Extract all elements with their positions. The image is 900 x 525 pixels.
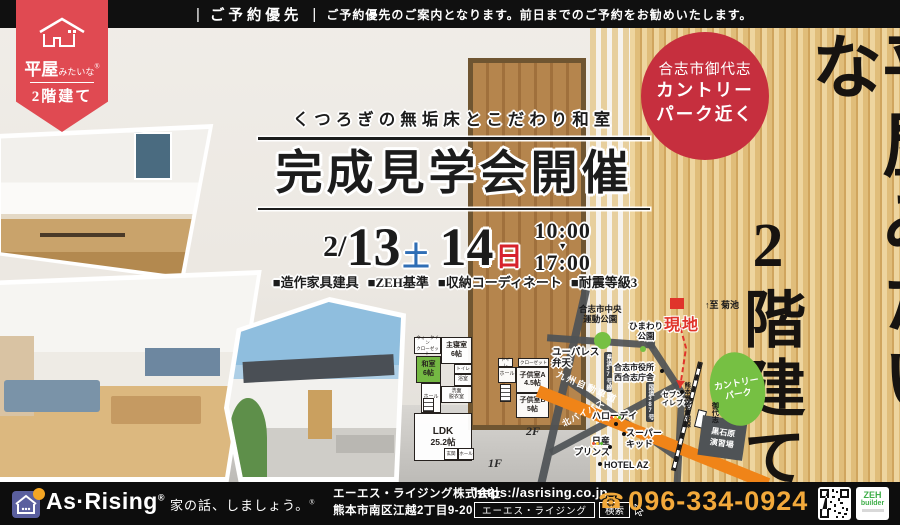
event-day2: 14 [440, 220, 494, 274]
zeh-builder-badge: ZEH builder [856, 487, 889, 520]
sports-park-label: 合志市中央 運動公園 [579, 304, 622, 324]
map-label: 西合志庁舎 [614, 373, 654, 383]
registered-mark: ® [309, 499, 315, 507]
entry-door [308, 390, 332, 439]
divider: | [196, 6, 200, 23]
room-label: 主寝室 [442, 342, 471, 350]
station-label: 御代志 [710, 402, 718, 423]
badge-park-line1: カントリー [641, 79, 769, 103]
headline-rule-bottom [258, 208, 650, 211]
room-master: 主寝室 6帖 [441, 337, 472, 364]
room-label: クローゼット [519, 360, 548, 365]
room-toilet-1f: トイレ [454, 364, 472, 374]
room-label: トイレ [455, 366, 471, 371]
room-washroom: 洗面 脱衣室 [441, 386, 472, 403]
map-label: 公園 [629, 331, 663, 341]
stairs-2f [500, 384, 511, 402]
room-hall-entry: ホール [458, 448, 474, 460]
map-label: 合志市中央 [579, 304, 622, 314]
site-label: 現地 [664, 311, 700, 335]
map-label: スーパー [626, 428, 662, 439]
himawari-label: ひまわり 公園 [629, 321, 663, 341]
divider: | [312, 6, 316, 23]
traffic-signal-icon [610, 416, 621, 419]
map-label: 弁天 [552, 358, 599, 369]
floor-label-1f: 1F [488, 456, 502, 471]
brand-name: As·Rising [46, 488, 158, 514]
phone-number: 096-334-0924 [628, 486, 808, 517]
badge-park-line2: パーク近く [641, 103, 769, 127]
event-month: 2/ [323, 230, 346, 264]
map-label: 合志市役所 [614, 363, 654, 373]
phone-icon: ☎ [598, 489, 624, 514]
reservation-text-row: | ご予約優先 | ご予約優先のご案内となります。前日までのご予約をお勧めいたし… [196, 4, 753, 25]
photo-kitchen [0, 124, 220, 292]
feature-item: ■ZEH基準 [368, 272, 429, 291]
reservation-top-bar: | ご予約優先 | ご予約優先のご案内となります。前日までのご予約をお勧めいたし… [0, 0, 900, 28]
tagline-text: 家の話、しましょう。 [170, 498, 309, 513]
room-closet-2f: クローゼット [518, 358, 549, 367]
photo-house-exterior [224, 297, 406, 482]
ribbon-brand-line1: 平屋みたいな® [16, 55, 108, 80]
zeh-builder-label: builder [856, 500, 889, 507]
room-label: 脱衣室 [442, 395, 471, 401]
map-label: ひまわり [629, 321, 663, 331]
brand-tagline: 家の話、しましょう。® [170, 495, 316, 514]
traffic-signal-icon [592, 442, 603, 445]
time-start: 10:00 [535, 220, 591, 242]
room-size: 6帖 [417, 370, 440, 378]
time-end: 17:00 [535, 252, 591, 274]
headline-block: くつろぎの無垢床とこだわり和室 完成見学会開催 [258, 106, 650, 217]
room-entrance: 玄関 [444, 448, 458, 460]
map-label: プリンス [574, 447, 610, 458]
map-label: ユーパレス [552, 347, 599, 358]
headline-rule-top [258, 137, 650, 140]
reservation-priority-label: ご予約優先 [210, 4, 303, 25]
feature-list: ■造作家具建具 ■ZEH基準 ■収納コーディネート ■耐震等級3 [240, 272, 670, 291]
cabinet-handle [40, 233, 126, 237]
entry-steps [336, 435, 394, 453]
room-label: クローゼット [415, 346, 440, 356]
registered-mark: ® [158, 492, 165, 502]
event-day2-weekday: 日 [496, 235, 523, 274]
room-label: 浴室 [455, 377, 471, 383]
room-hall-2f: ホール [498, 367, 516, 383]
to-kikuchi-label: ↑至 菊池 [705, 300, 739, 311]
brand-large: 平屋 [24, 60, 58, 79]
site-marker [670, 298, 684, 309]
room-size: 6帖 [442, 351, 471, 359]
event-times: 10:00 ▼ 17:00 [535, 220, 591, 274]
cityhall-marker [660, 369, 664, 373]
ribbon-brand-line2: 2階建て [16, 85, 108, 106]
photo-exterior-image [229, 302, 401, 477]
room-washitsu: 和室 6帖 [416, 356, 441, 383]
website-url[interactable]: https://asrising.co.jp [474, 485, 608, 500]
superkid-marker [622, 432, 626, 436]
room-wic: ウォークイン クローゼット [414, 337, 441, 354]
room-label: 玄関 [445, 451, 457, 456]
stairs-1f [423, 398, 434, 412]
map-label: 運動公園 [579, 314, 622, 324]
event-day1: 13 [347, 220, 401, 274]
blue-sofa [4, 380, 100, 412]
room-label: 和室 [417, 361, 440, 369]
event-day1-weekday: 土 [403, 235, 430, 274]
nissan-marker [608, 445, 612, 449]
room-bath: 浴室 [454, 374, 472, 386]
yupalace-label: ユーパレス 弁天 [552, 347, 599, 370]
registered-mark: ® [94, 63, 99, 71]
room-label: 子供室A [517, 372, 548, 380]
map-label: キッド [626, 439, 662, 450]
feature-item: ■耐震等級3 [571, 272, 637, 291]
feature-item: ■収納コーディネート [438, 272, 562, 291]
nissan-label: 日産 プリンス [574, 436, 610, 458]
floor-label-2f: 2F [526, 424, 540, 439]
room-label: ウォークイン [415, 335, 440, 345]
brand-small: みたいな [58, 67, 94, 77]
flyer-poster: | ご予約優先 | ご予約優先のご案内となります。前日までのご予約をお勧めいたし… [0, 0, 900, 525]
cityhall-label: 合志市役所 西合志庁舎 [614, 363, 654, 382]
badge-city: 合志市御代志 [641, 58, 769, 79]
halloday-marker [614, 422, 618, 426]
room-label: ホール [499, 372, 515, 378]
feature-item: ■造作家具建具 [273, 272, 359, 291]
event-title: 完成見学会開催 [258, 147, 650, 201]
access-map: 黒石原 演習場 カントリー パーク 現地 ↑至 菊池 合志市中央 運動公園 ひま… [552, 290, 767, 482]
room-label: ホール [459, 451, 473, 456]
qr-code [818, 487, 851, 520]
location-badge: 合志市御代志 カントリー パーク近く [641, 32, 769, 160]
room-toilet-2f: トイレ [498, 358, 513, 367]
navy-accent-wall [145, 348, 219, 376]
footer-bar: As·Rising® 家の話、しましょう。® エーエス・ライジング株式会社 熊本… [0, 482, 900, 525]
ribbon-divider-line [30, 82, 94, 83]
photo-kitchen-image [1, 129, 215, 287]
railway-label: 熊本電鉄菊池線 [682, 382, 690, 428]
pref-road-pill: 県道37号線 [604, 352, 612, 392]
room-size: 25.2帖 [415, 438, 471, 448]
route-387-pill: 国道387号 [646, 382, 654, 422]
zeh-fineprint [862, 509, 884, 512]
event-date-row: 2/ 13 土 14 日 10:00 ▼ 17:00 [262, 220, 652, 274]
room-size: 5帖 [517, 406, 548, 414]
search-input[interactable]: エーエス・ライジング [474, 502, 595, 518]
event-subtitle: くつろぎの無垢床とこだわり和室 [258, 106, 650, 130]
dining-table [111, 396, 201, 424]
hotel-az-marker [598, 462, 602, 466]
counter-edge [1, 214, 215, 219]
brand-wordmark: As·Rising® [46, 488, 165, 515]
asrising-logo-icon [12, 487, 46, 519]
hotel-az-label: HOTEL AZ [604, 460, 649, 471]
reservation-note: ご予約優先のご案内となります。前日までのご予約をお勧めいたします。 [326, 6, 752, 23]
roof [242, 354, 394, 383]
house-outline-icon [36, 16, 88, 50]
navy-door [134, 132, 173, 179]
superkid-label: スーパー キッド [626, 428, 662, 450]
phone-block: ☎ 096-334-0924 [598, 486, 808, 517]
zeh-label: ZEH [856, 491, 889, 500]
vertical-copy-hiraya: 平屋みたいな [804, 30, 900, 490]
